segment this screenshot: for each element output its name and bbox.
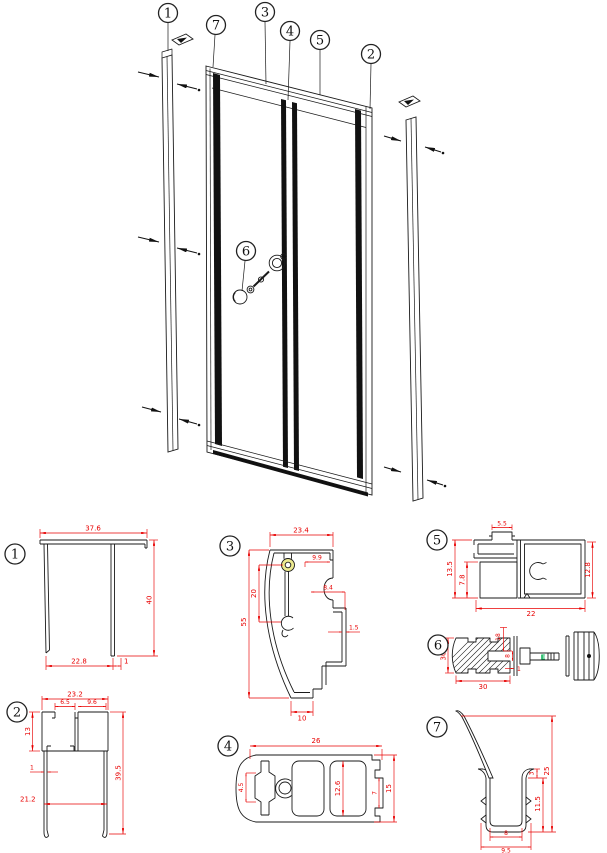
dim-p5-right: 12.8 [584, 562, 592, 578]
dim-p2-wall: 1 [30, 765, 34, 772]
dim-p7-lip: 3 [529, 771, 536, 775]
glazing-clip [281, 616, 293, 637]
svg-text:7: 7 [433, 721, 441, 736]
dim-p2-span: 21.2 [20, 796, 36, 804]
callout-4-number: 4 [286, 25, 294, 40]
profile-4-dimensions: 26 4.5 12.6 7 15 [238, 737, 397, 822]
callout-5-number: 5 [316, 34, 324, 49]
dim-p7-channel: 11.5 [534, 796, 542, 812]
profile-5-drawing [474, 532, 585, 598]
screw-assembly: E [520, 648, 559, 664]
screw-boss-hole [285, 562, 291, 568]
roller-pin [279, 782, 291, 794]
profile-sections-view: 37.6 40 22.8 1 1 23.2 6.5 9.6 13 39.5 1 [0, 520, 607, 853]
callout-1-number: 1 [164, 7, 172, 22]
svg-text:5: 5 [433, 534, 441, 549]
dim-p6-screw: 18 [495, 633, 502, 641]
mounting-bracket-icon [399, 96, 420, 107]
callout-6-number: 6 [242, 245, 250, 260]
svg-text:6: 6 [434, 639, 442, 654]
e-clip-marker: E [541, 654, 546, 662]
dim-p6-width: 30 [479, 683, 488, 691]
exploded-assembly-view: 1 7 3 4 5 2 6 [0, 0, 607, 520]
dim-p2-depth: 13 [24, 727, 32, 736]
dim-p3-pocket: 8.4 [323, 585, 333, 592]
dim-p4-inner: 12.6 [334, 780, 342, 796]
profile-6-dimensions: 30 30 18 8 1 [440, 628, 522, 692]
svg-text:1: 1 [11, 548, 19, 563]
profile-1-dimensions: 37.6 40 22.8 1 [40, 525, 158, 671]
dim-p4-width: 26 [312, 737, 321, 745]
callout-1: 1 [159, 4, 178, 52]
dim-p2-opening: 6.5 [60, 699, 70, 706]
dim-p2-width: 23.2 [67, 691, 83, 699]
profile-6-drawing: E [428, 632, 599, 682]
profile-5-badge: 5 [427, 530, 447, 550]
callout-7: 7 [207, 16, 226, 68]
dim-p5-width: 22 [527, 610, 536, 618]
profile-5-dimensions: 5.5 13.5 7.8 12.8 22 [446, 521, 596, 619]
dim-p3-height: 55 [240, 618, 248, 627]
dim-p3-width: 23.4 [293, 527, 309, 535]
profile-3-drawing [265, 550, 346, 698]
mounting-bracket-icon [172, 34, 193, 45]
door-assembly [206, 66, 372, 497]
callout-3: 3 [256, 3, 275, 85]
seal-fin [456, 711, 493, 778]
dim-p7-total: 25 [543, 767, 551, 776]
profile-4-drawing [236, 755, 383, 822]
dim-p2-channel: 9.6 [87, 699, 97, 706]
callout-3-number: 3 [261, 6, 269, 21]
profile-7-badge: 7 [427, 717, 447, 737]
technical-drawing-page: 1 7 3 4 5 2 6 [0, 0, 607, 853]
dim-p4-height: 15 [385, 784, 393, 793]
profile-7-drawing [456, 711, 534, 832]
dim-p3-top-offset: 9.9 [312, 555, 322, 562]
dim-p7-outer: 9.5 [501, 848, 511, 853]
svg-text:2: 2 [13, 706, 21, 721]
svg-text:4: 4 [224, 740, 232, 755]
dim-p6-washer: 1 [517, 666, 521, 673]
callout-2-number: 2 [367, 48, 375, 63]
knob-end-cap [566, 632, 599, 680]
glazing-clip [530, 563, 547, 580]
profile-3-badge: 3 [220, 536, 240, 556]
dim-p3-wall: 1.5 [349, 625, 359, 632]
profile-6-badge: 6 [428, 635, 448, 655]
callout-5: 5 [311, 31, 330, 96]
retention-barbs [481, 797, 531, 823]
dim-p3-centers: 20 [250, 589, 258, 598]
profile-2-dimensions: 23.2 6.5 9.6 13 39.5 1 21.2 [20, 691, 126, 835]
dim-p1-height: 40 [146, 596, 154, 605]
profile-1-badge: 1 [5, 544, 25, 564]
callout-7-number: 7 [212, 19, 220, 34]
dim-p1-bottom: 22.8 [71, 658, 87, 666]
profile-2-drawing [42, 712, 108, 837]
dim-p4-tab: 7 [372, 791, 379, 795]
profile-4-badge: 4 [218, 736, 238, 756]
dim-p1-lip: 1 [124, 658, 128, 666]
dim-p4-slot: 4.5 [238, 783, 245, 793]
dim-p7-inner: 8 [504, 830, 508, 837]
wall-profile-right [406, 117, 423, 501]
dim-p3-foot: 10 [298, 715, 307, 723]
dim-p1-width: 37.6 [85, 525, 101, 533]
dim-p2-height: 39.5 [115, 765, 123, 781]
callout-2: 2 [362, 45, 381, 110]
profile-1-drawing [40, 540, 147, 656]
profile-2-badge: 2 [7, 702, 27, 722]
dim-p5-left: 13.5 [446, 561, 454, 577]
svg-text:3: 3 [226, 540, 234, 555]
wall-profile-left [162, 49, 178, 452]
dim-p5-inner: 7.8 [459, 574, 467, 585]
dim-p6-slot: 8 [505, 654, 512, 658]
dim-p5-hat: 5.5 [497, 521, 507, 528]
